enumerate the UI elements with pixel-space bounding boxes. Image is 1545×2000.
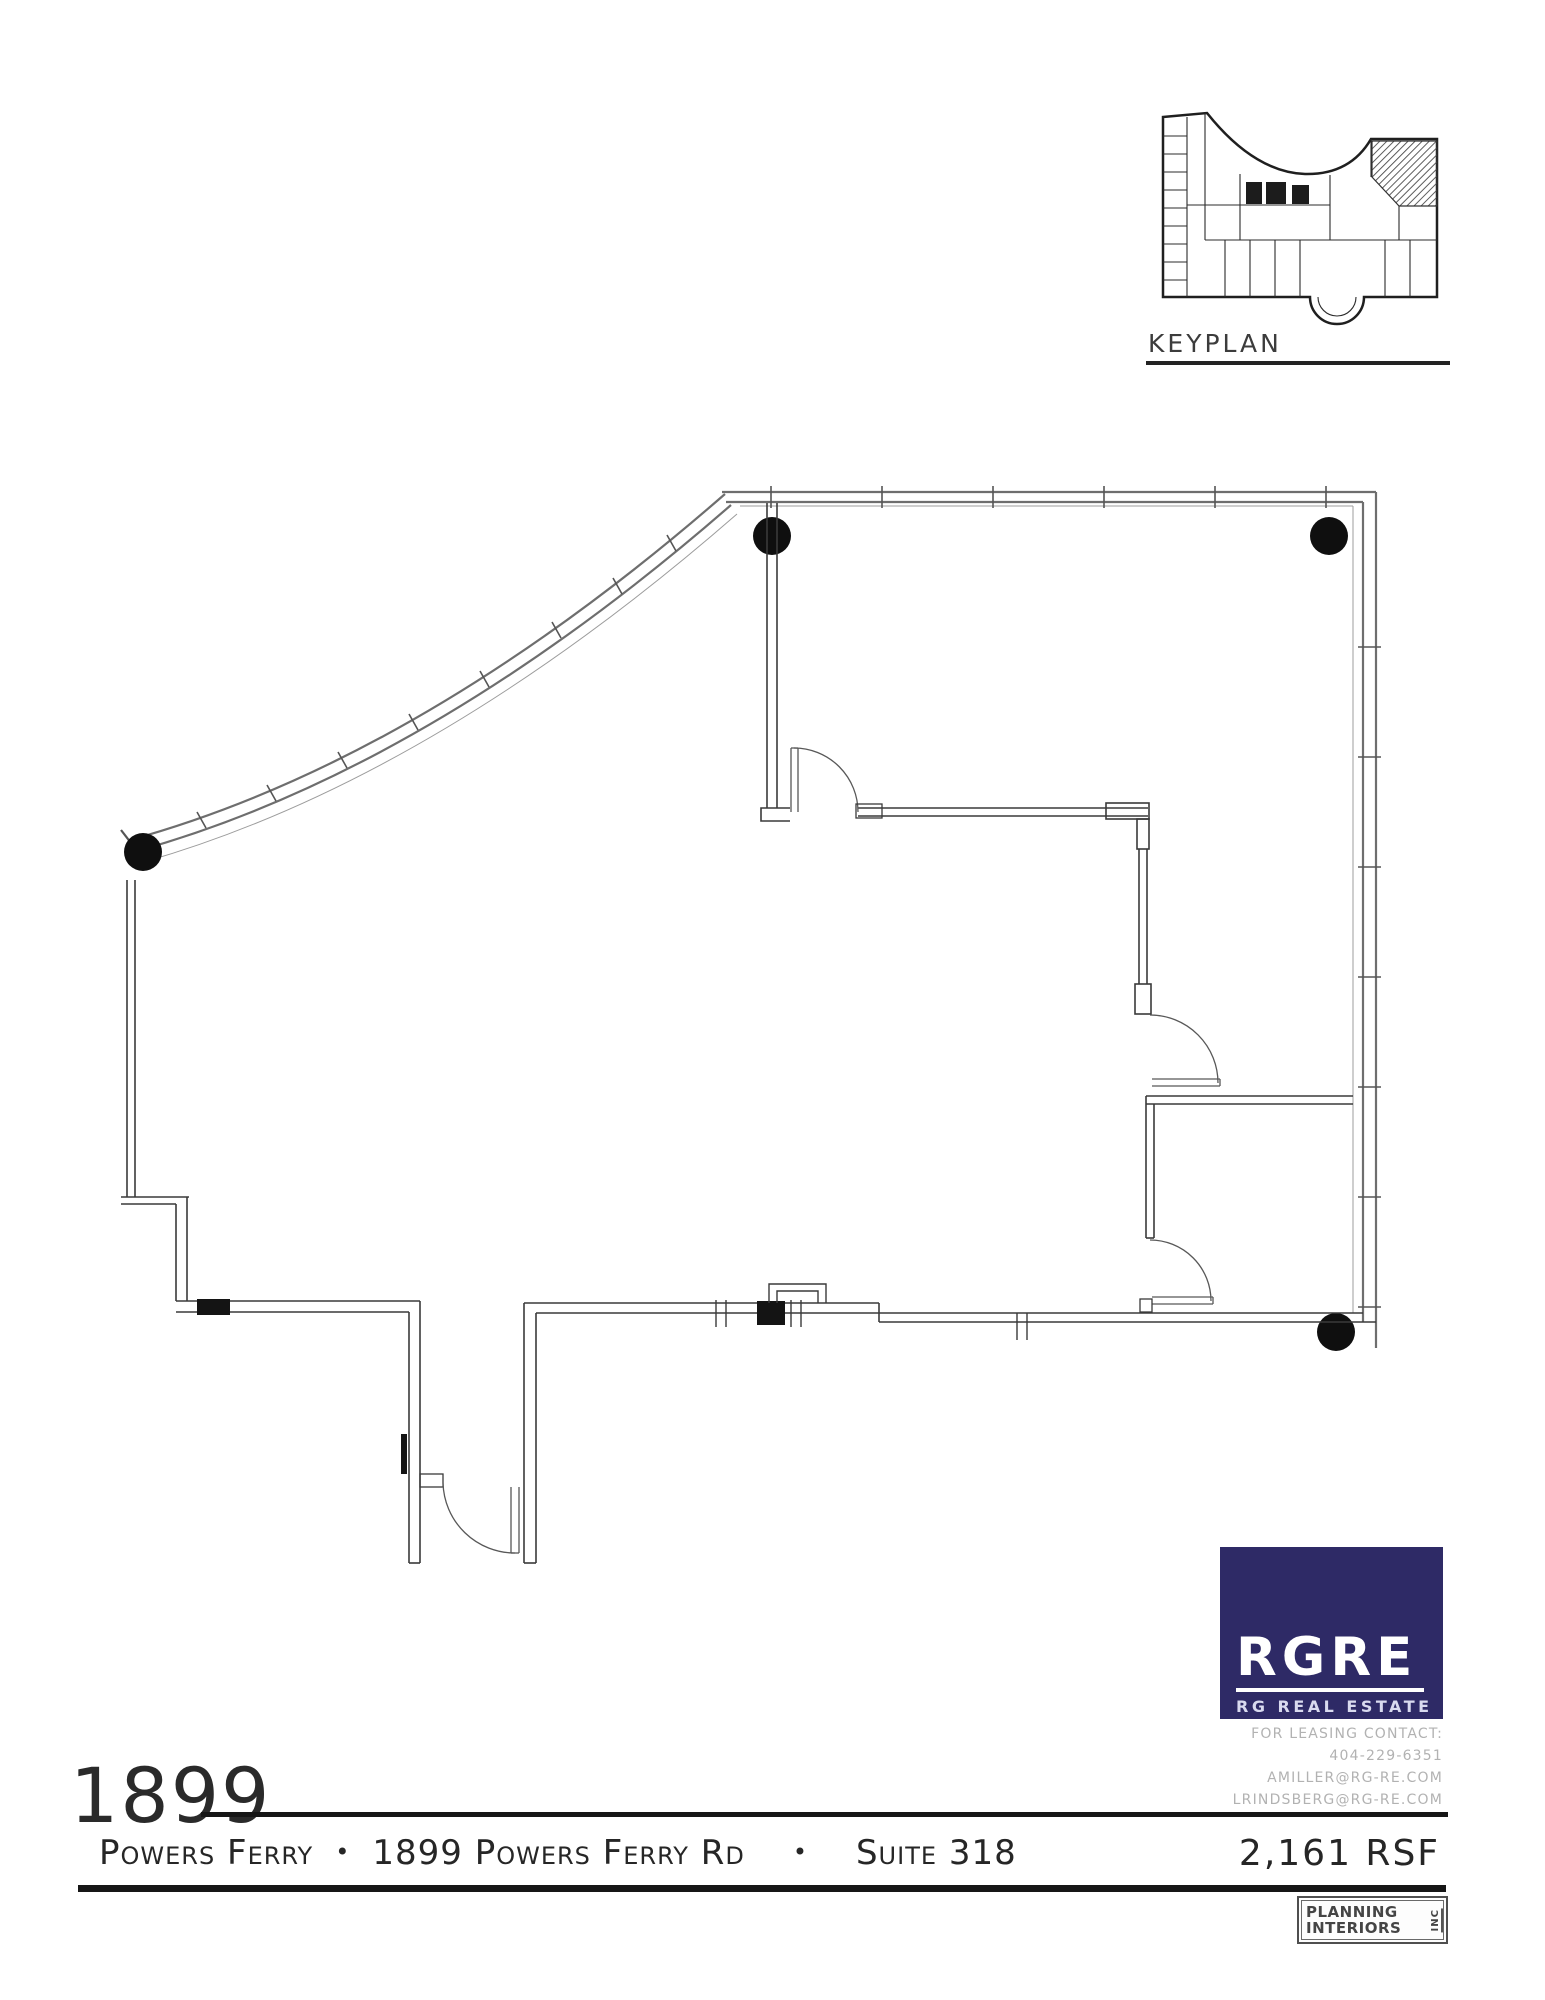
stamp-inc-label: INC	[1430, 1908, 1443, 1932]
contact-email-1: AMILLER@RG-RE.COM	[1233, 1767, 1443, 1789]
contact-phone: 404-229-6351	[1233, 1745, 1443, 1767]
column-marker-top-right	[1310, 517, 1348, 555]
street-address: 1899 Powers Ferry Rd	[372, 1833, 744, 1873]
column-marker-top-middle	[753, 517, 791, 555]
office-b-door	[1140, 1240, 1213, 1312]
window-mullion-ticks	[121, 486, 1381, 1307]
logo-tagline: RG REAL ESTATE	[1236, 1697, 1443, 1716]
logo-underline	[1236, 1688, 1424, 1692]
column-marker-bottom-right	[1317, 1313, 1355, 1351]
planning-interiors-stamp: PLANNING INTERIORS INC	[1297, 1896, 1448, 1944]
suite-number: Suite 318	[856, 1833, 1017, 1873]
window-inner-face-lines	[144, 506, 1353, 1313]
office-a-strip-door	[1150, 1015, 1220, 1086]
footer-address-line: Powers Ferry•1899 Powers Ferry Rd•Suite …	[99, 1833, 1017, 1873]
column-marker-left	[124, 833, 162, 871]
logo-brand: RGRE	[1236, 1631, 1443, 1684]
stamp-line-1: PLANNING	[1306, 1904, 1428, 1921]
suite-entry-door	[420, 1474, 519, 1553]
stamp-inner-border: PLANNING INTERIORS INC	[1301, 1900, 1444, 1940]
footer-rule-bottom	[78, 1885, 1446, 1892]
door-swings	[420, 748, 1220, 1553]
structural-columns	[124, 517, 1355, 1351]
wall-fill-blocks	[197, 1299, 785, 1474]
building-number: 1899	[70, 1758, 271, 1834]
building-name: Powers Ferry	[99, 1833, 313, 1873]
stamp-line-2: INTERIORS	[1306, 1920, 1428, 1937]
sheet: { "keyplan": { "label": "KEYPLAN" }, "lo…	[0, 0, 1545, 2000]
footer-rule-top	[201, 1812, 1448, 1817]
stamp-words: PLANNING INTERIORS	[1302, 1904, 1428, 1937]
contact-heading: FOR LEASING CONTACT:	[1233, 1723, 1443, 1745]
rgre-logo: RGRE RG REAL ESTATE	[1220, 1547, 1443, 1719]
leasing-contact: FOR LEASING CONTACT: 404-229-6351 AMILLE…	[1233, 1723, 1443, 1811]
separator-bullet: •	[335, 1838, 350, 1866]
separator-bullet: •	[793, 1838, 808, 1866]
contact-email-2: LRINDSBERG@RG-RE.COM	[1233, 1789, 1443, 1811]
exterior-window-walls	[130, 492, 1376, 1348]
rentable-area: 2,161 RSF	[1239, 1833, 1440, 1874]
interior-walls	[121, 503, 1376, 1563]
